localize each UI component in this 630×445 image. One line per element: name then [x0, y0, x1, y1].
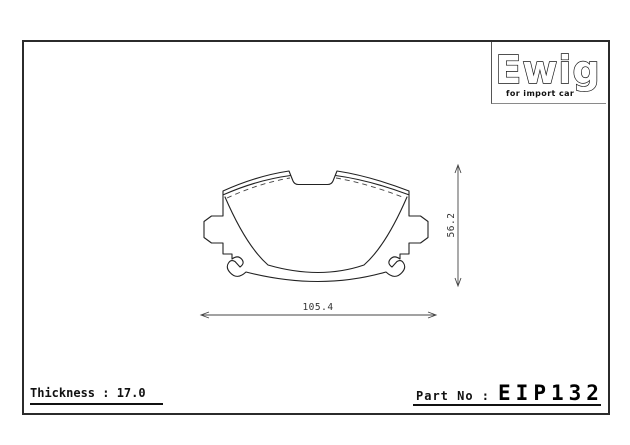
thickness-label: Thickness : 17.0: [30, 386, 163, 405]
height-dimension-label: 56.2: [446, 213, 457, 238]
chamfer-dashed-line-right: [336, 178, 405, 198]
pad-outline: [204, 171, 428, 282]
height-dimension: 56.2: [446, 165, 461, 286]
ewig-logo: Ewig: [496, 48, 602, 92]
logo-tagline: for import car: [506, 89, 574, 98]
friction-material-outline: [225, 197, 407, 273]
part-no-block: Part No : EIP132: [413, 381, 601, 406]
ewig-logo-text: Ewig: [496, 48, 601, 92]
chamfer-dashed-line-left: [227, 178, 290, 198]
brake-pad-drawing: 56.2 105.4: [185, 155, 475, 330]
part-number: EIP132: [498, 381, 604, 405]
part-no-label: Part No :: [416, 389, 490, 403]
logo-box: Ewig for import car: [491, 42, 606, 104]
width-dimension: 105.4: [201, 302, 436, 318]
drawing-sheet: Ewig for import car 56.2 105.4 T: [0, 0, 630, 445]
width-dimension-label: 105.4: [302, 302, 333, 313]
